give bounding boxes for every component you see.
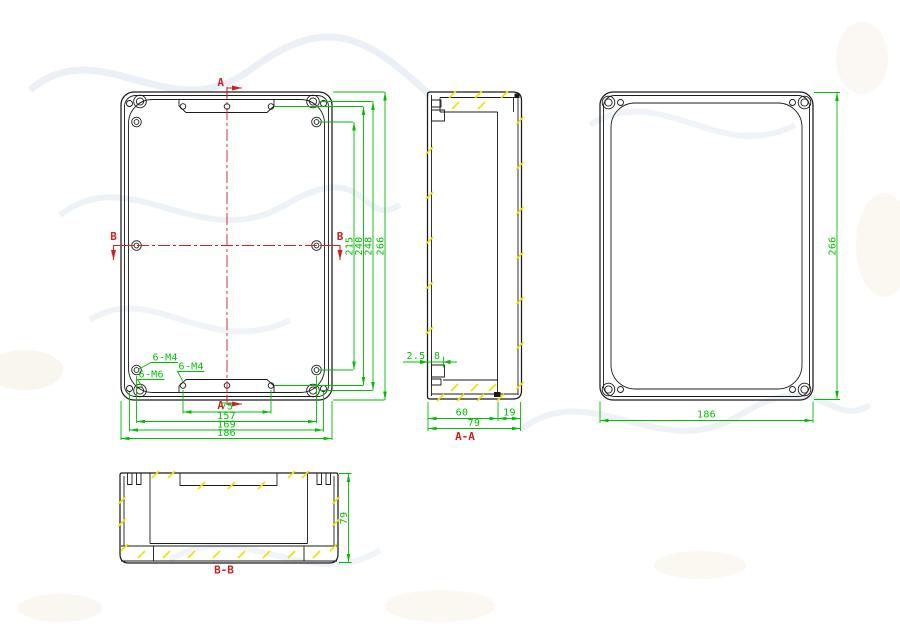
section-arrow-b-left	[114, 246, 134, 261]
front-view: A A B B 215 240 248 266 75 1	[110, 76, 386, 440]
aa-outline	[428, 92, 522, 399]
dim-back-width-label: 186	[697, 410, 716, 421]
section-label-a-top: A	[217, 76, 224, 89]
lid-seal-bottom	[494, 392, 501, 397]
section-aa-title: A-A	[455, 430, 475, 443]
dim-60-label: 60	[456, 408, 469, 419]
section-view-bb: 79 B-B	[119, 471, 352, 577]
dim-186-label: 186	[217, 428, 236, 439]
dim-bb-height-label: 79	[339, 512, 350, 525]
bb-notch-right	[317, 473, 331, 485]
thread-callouts: 6-M4 6-M6 6-M4	[138, 353, 205, 388]
drawing-canvas: A A B B 215 240 248 266 75 1	[0, 0, 900, 636]
back-screw-holes	[602, 96, 811, 396]
lid-seal-top	[515, 94, 520, 99]
back-view: 266 186	[600, 92, 840, 423]
bottom-mounting-plate	[179, 380, 274, 393]
bb-outline	[120, 473, 338, 563]
aa-hatch-marks	[426, 91, 524, 401]
back-outline	[600, 92, 813, 400]
aa-bottom-dimensions: 60 19 79	[428, 402, 521, 431]
bb-dimensions: 79	[339, 474, 352, 563]
dim-19-label: 19	[503, 408, 516, 419]
technical-drawing: A A B B 215 240 248 266 75 1	[0, 0, 900, 636]
aa-wall-dimensions: 2.5 8	[403, 351, 457, 368]
dim-back-height-label: 266	[828, 237, 839, 256]
dim-wall-label: 2.5	[407, 351, 426, 362]
callout-6-m6-corner: 6-M6	[139, 370, 164, 381]
front-centerlines	[116, 87, 337, 405]
top-mounting-plate	[179, 100, 274, 113]
section-arrow-b-right	[320, 246, 340, 261]
section-bb-title: B-B	[214, 564, 234, 577]
callout-6-m4-plate: 6-M4	[179, 362, 204, 373]
dim-248-label: 248	[364, 237, 375, 256]
section-label-b-left: B	[110, 230, 117, 243]
dim-266-label: 266	[376, 237, 387, 256]
bb-notch-left	[128, 473, 142, 485]
section-view-aa: 2.5 8 60 19 79 A-A	[403, 91, 524, 443]
section-label-b-right: B	[337, 230, 344, 243]
callout-6-m4-boss: 6-M4	[153, 353, 178, 364]
dim-79-label: 79	[468, 418, 481, 429]
back-dimensions: 266 186	[600, 93, 840, 424]
dim-step-label: 8	[434, 351, 440, 362]
